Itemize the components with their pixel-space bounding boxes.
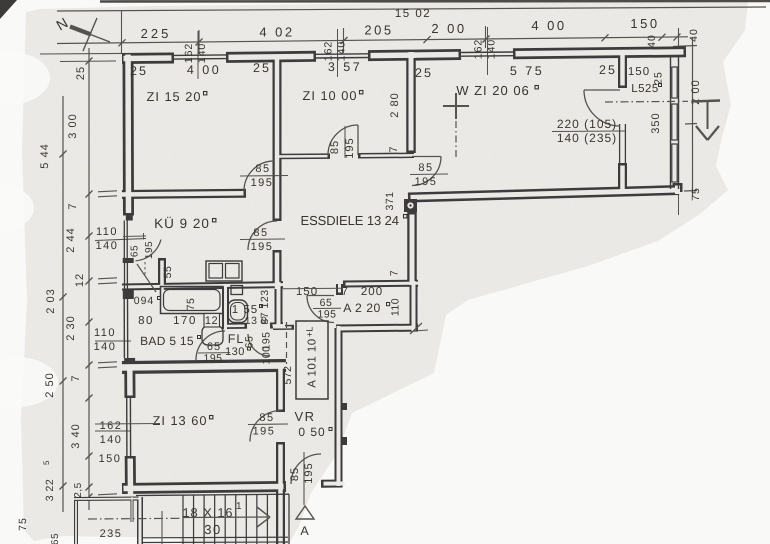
svg-text:A: A bbox=[300, 524, 309, 538]
